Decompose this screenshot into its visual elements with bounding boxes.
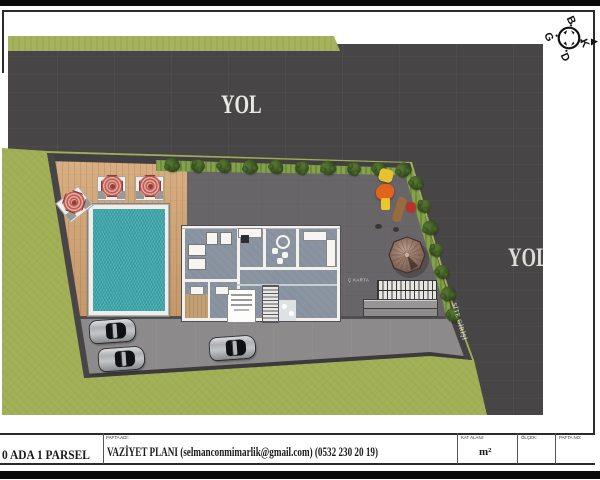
- svg-text:G: G: [541, 31, 556, 44]
- svg-text:D: D: [558, 51, 572, 63]
